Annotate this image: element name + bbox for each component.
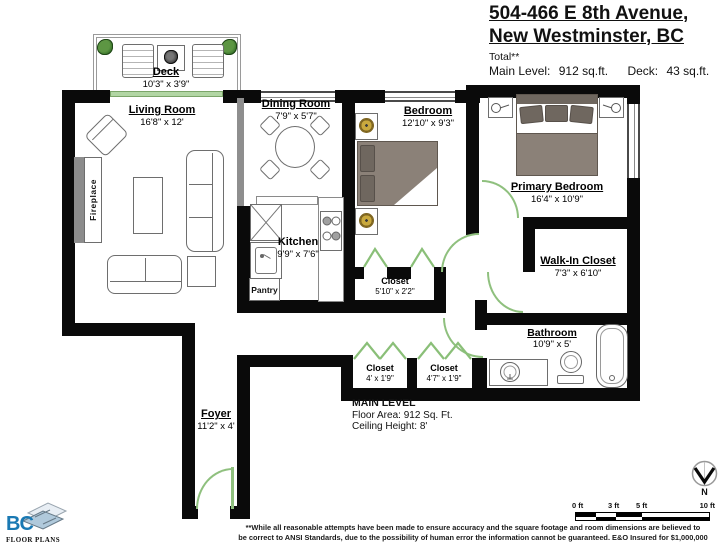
entry-door-swing — [196, 468, 233, 509]
wall — [237, 355, 250, 519]
scale-tick-3: 3 ft — [608, 501, 619, 510]
main-level-value: 912 sq.ft. — [559, 64, 608, 78]
bedroom-door-swing — [441, 233, 479, 272]
level-ceiling-height: Ceiling Height: 8' — [352, 421, 453, 433]
room-label-kitchen: Kitchen 9'9" x 7'6" — [277, 236, 319, 260]
wall — [627, 96, 640, 104]
plant-icon — [97, 39, 113, 55]
toilet-tank — [557, 375, 584, 384]
room-label-living: Living Room 16'8" x 12' — [129, 104, 196, 128]
lamp-icon — [600, 98, 623, 117]
wall — [62, 90, 110, 103]
deck-value: 43 sq.ft. — [666, 64, 709, 78]
entry-door-leaf — [231, 467, 234, 509]
room-label-deck: Deck 10'3" x 3'9" — [143, 66, 190, 90]
burner-icons — [321, 212, 341, 250]
wall — [627, 178, 640, 401]
room-label-hall-closet-2: Closet 4'7" x 1'9" — [427, 363, 462, 383]
coffee-table — [133, 177, 163, 234]
wall — [341, 355, 353, 401]
lamp-icon — [359, 213, 374, 228]
scale-tick-0: 0 ft — [572, 501, 583, 510]
vanity — [489, 359, 548, 386]
wall — [62, 323, 195, 336]
lamp-icon — [359, 118, 374, 133]
bifold-door-icon — [363, 247, 388, 268]
sliding-door — [110, 91, 223, 97]
floorplan-page: 504-466 E 8th Avenue, New Westminster, B… — [0, 0, 720, 547]
area-summary: Main Level: 912 sq.ft. Deck: 43 sq.ft. — [489, 64, 709, 78]
room-label-bedroom-closet: Closet 5'10" x 2'2" — [375, 276, 414, 296]
bifold-door-icon — [417, 341, 472, 360]
fireplace: Fireplace — [84, 157, 102, 243]
room-label-walkin-closet: Walk-In Closet 7'3" x 6'10" — [540, 255, 615, 279]
level-summary: MAIN LEVEL Floor Area: 912 Sq. Ft. Ceili… — [352, 398, 453, 433]
wall — [482, 313, 627, 325]
fireplace-label: Fireplace — [88, 179, 98, 221]
wall — [237, 355, 353, 367]
wall — [348, 267, 364, 279]
scale-bar-rule — [575, 512, 710, 521]
pantry-label: Pantry — [251, 285, 277, 295]
wall — [182, 323, 195, 519]
room-label-hall-closet-1: Closet 4' x 1'9" — [366, 363, 394, 383]
disclaimer: **While all reasonable attempts have bee… — [230, 523, 716, 542]
stove — [320, 211, 342, 251]
armchair — [84, 113, 129, 158]
cabinet-x-icon — [251, 205, 281, 240]
dining-chair — [259, 159, 281, 181]
lamp-icon — [489, 98, 512, 117]
scale-tick-5: 5 ft — [636, 501, 647, 510]
level-title: MAIN LEVEL — [352, 398, 453, 410]
bifold-door-icon — [353, 341, 407, 360]
logo-tagline: FLOOR PLANS — [6, 536, 60, 544]
room-label-primary: Primary Bedroom 16'4" x 10'9" — [511, 181, 603, 205]
sofa — [186, 150, 224, 252]
wall — [466, 85, 479, 235]
nightstand — [599, 97, 624, 118]
bed — [516, 94, 598, 176]
room-label-foyer: Foyer 11'2" x 4' — [197, 408, 234, 432]
half-wall — [237, 98, 244, 210]
pantry: Pantry — [249, 278, 280, 301]
room-label-bedroom: Bedroom 12'10" x 9'3" — [402, 105, 454, 129]
walkin-closet-door-swing — [487, 272, 523, 313]
side-table — [187, 256, 216, 287]
disclaimer-line2: be correct to ANSI Standards, due to the… — [230, 533, 716, 543]
toilet — [560, 351, 582, 373]
deck-label: Deck: — [627, 64, 658, 78]
dining-table — [275, 126, 315, 168]
address-line1: 504-466 E 8th Avenue, — [489, 3, 688, 25]
bifold-door-icon — [410, 247, 435, 268]
nightstand — [488, 97, 513, 118]
vanity-sink-icon — [490, 360, 547, 385]
room-label-bathroom: Bathroom 10'9" x 5' — [527, 327, 577, 351]
logo-brand: BC — [6, 513, 33, 536]
window — [385, 91, 458, 102]
loveseat — [107, 255, 182, 294]
disclaimer-line1: **While all reasonable attempts have bee… — [230, 523, 716, 533]
main-level-label: Main Level: — [489, 64, 550, 78]
scale-bar: 0 ft 3 ft 5 ft 10 ft — [572, 501, 715, 523]
bathtub — [596, 324, 628, 388]
wall — [523, 217, 640, 229]
total-note: Total** — [489, 51, 519, 63]
fireplace-hearth — [74, 157, 84, 243]
bed — [357, 141, 438, 206]
window — [627, 104, 640, 178]
deck-chair — [192, 44, 224, 78]
north-label: N — [691, 487, 718, 497]
compass-icon — [691, 460, 718, 487]
dining-chair — [309, 159, 331, 181]
room-label-dining: Dining Room 7'9" x 5'7" — [262, 98, 330, 122]
level-floor-area: Floor Area: 912 Sq. Ft. — [352, 410, 453, 422]
address-line2: New Westminster, BC — [489, 26, 684, 48]
scale-tick-10: 10 ft — [700, 501, 715, 510]
